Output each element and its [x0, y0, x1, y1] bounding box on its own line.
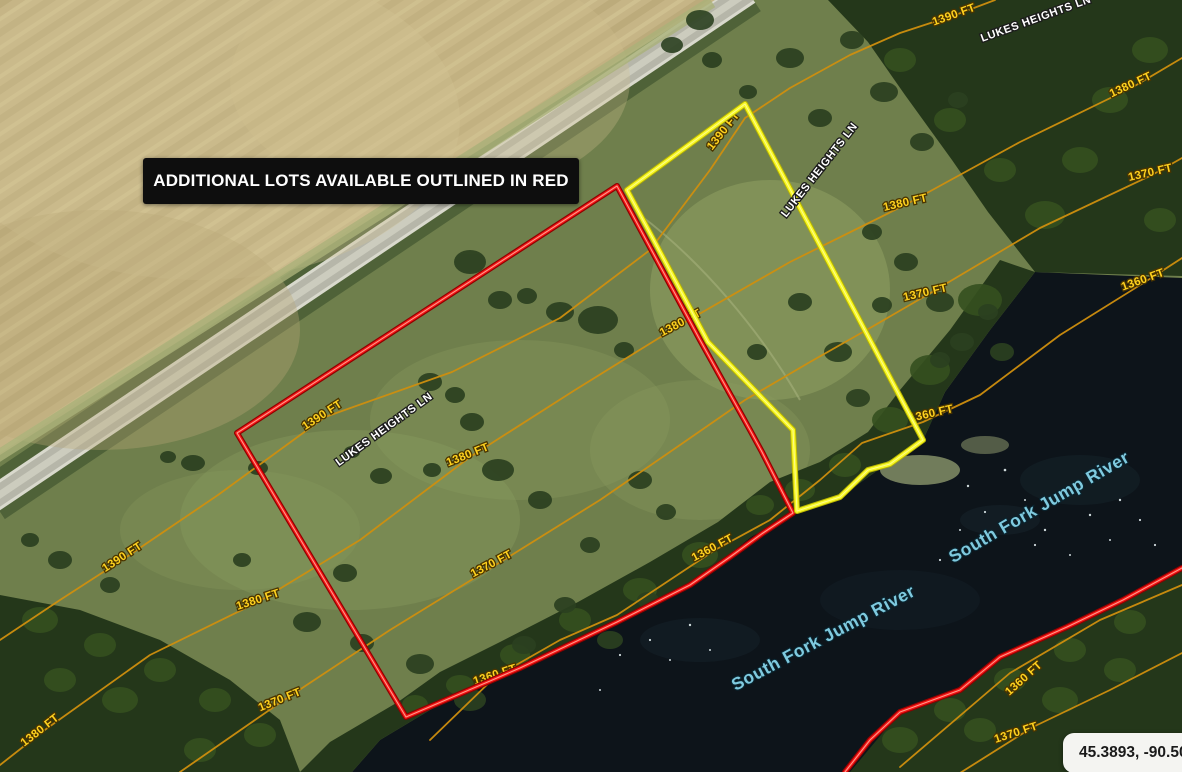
- aerial-map: 1390 FT 1380 FT 1370 FT 1360 FT 1390 FT …: [0, 0, 1182, 772]
- aerial-map-canvas: 1390 FT 1380 FT 1370 FT 1360 FT 1390 FT …: [0, 0, 1182, 772]
- availability-banner: ADDITIONAL LOTS AVAILABLE OUTLINED IN RE…: [143, 158, 579, 204]
- coordinates-badge: 45.3893, -90.5094: [1063, 733, 1182, 772]
